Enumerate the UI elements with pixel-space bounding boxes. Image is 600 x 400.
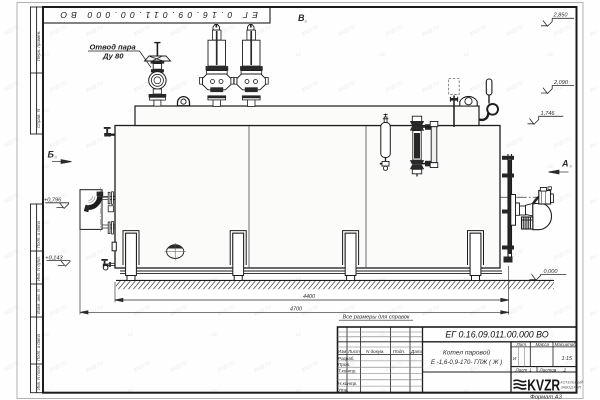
svg-text:Подп. и дата: Подп. и дата	[36, 220, 41, 248]
svg-text:ЗАВОД РЭП: ЗАВОД РЭП	[561, 386, 582, 390]
svg-text:Лит.: Лит.	[516, 342, 528, 347]
svg-text:ЕГ 0.16.09.011.00.000 ВО: ЕГ 0.16.09.011.00.000 ВО	[445, 330, 548, 340]
svg-text:N докум.: N докум.	[366, 349, 385, 354]
svg-text:Справ. N: Справ. N	[36, 108, 41, 128]
svg-text:Ду 80: Ду 80	[102, 52, 124, 61]
svg-text:КОТЕЛЬНЫЙ: КОТЕЛЬНЫЙ	[561, 381, 584, 385]
svg-text:2: 2	[563, 367, 567, 372]
svg-text:Лист: Лист	[515, 367, 528, 372]
svg-text:Масса: Масса	[536, 342, 550, 347]
svg-text:Лист: Лист	[347, 349, 360, 354]
svg-text:Перв. примен.: Перв. примен.	[36, 30, 41, 61]
svg-text:4700: 4700	[290, 306, 302, 312]
svg-text:2,850: 2,850	[553, 13, 569, 19]
svg-text:Взам. инв. N: Взам. инв. N	[36, 288, 41, 314]
svg-text:Е -1,6-0,9-170- ГЛЖ ( Ж ): Е -1,6-0,9-170- ГЛЖ ( Ж )	[431, 359, 502, 366]
svg-text:Формат А3: Формат А3	[530, 395, 562, 400]
svg-text:+0,796: +0,796	[44, 198, 62, 204]
svg-text:1: 1	[529, 367, 532, 372]
svg-text:Изм.: Изм.	[338, 349, 348, 354]
svg-text:Т.контр.: Т.контр.	[338, 369, 357, 374]
svg-text:ЕГ 0.16.09.011.00.000 ВО: ЕГ 0.16.09.011.00.000 ВО	[56, 10, 258, 20]
svg-text:Листов: Листов	[539, 367, 557, 372]
svg-text:Пров.: Пров.	[338, 362, 350, 367]
svg-text:0,000: 0,000	[544, 269, 559, 275]
svg-text:Котел паровой: Котел паровой	[443, 349, 491, 357]
svg-text:Масштаб: Масштаб	[555, 342, 577, 347]
svg-text:Разраб.: Разраб.	[338, 356, 355, 361]
svg-text:А: А	[561, 159, 569, 169]
svg-text:Подп.: Подп.	[393, 349, 405, 354]
svg-text:1,746: 1,746	[541, 111, 556, 117]
svg-text:Н.контр.: Н.контр.	[338, 381, 357, 386]
svg-text:KVZR: KVZR	[527, 376, 560, 394]
svg-text:Утв.: Утв.	[338, 387, 348, 392]
svg-text:Б: Б	[48, 150, 55, 160]
svg-text:Дата: Дата	[410, 349, 424, 354]
svg-text:Инв. N дубл.: Инв. N дубл.	[36, 256, 41, 281]
svg-text:Все размеры для справок: Все размеры для справок	[343, 315, 410, 321]
svg-text:Инв. N подл.: Инв. N подл.	[36, 365, 41, 390]
svg-text:2,090: 2,090	[553, 80, 569, 86]
svg-text:+0,143: +0,143	[45, 255, 63, 261]
svg-text:Отвод пара: Отвод пара	[90, 43, 136, 52]
svg-text:4400: 4400	[303, 294, 315, 300]
svg-text:1:15: 1:15	[562, 356, 573, 362]
svg-text:Подп. и дата: Подп. и дата	[36, 333, 41, 361]
